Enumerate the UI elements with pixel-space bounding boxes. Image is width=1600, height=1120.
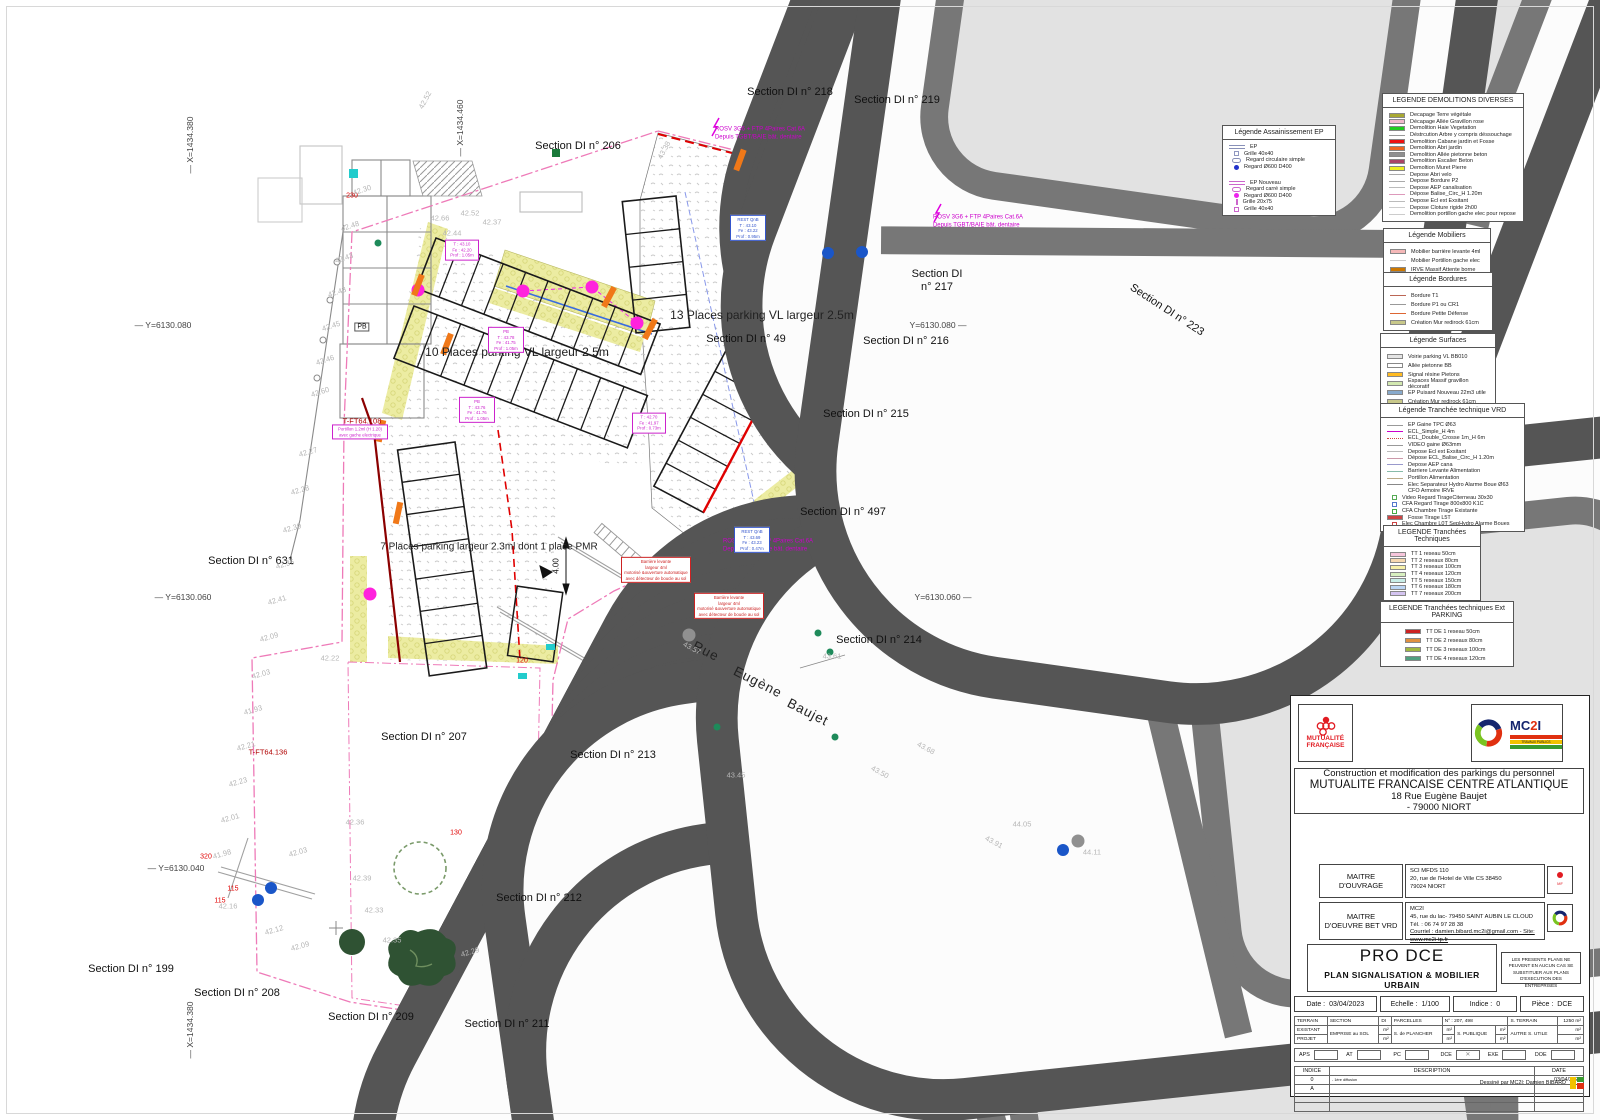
legend-row: Depose Ecl ext Exsitant: [1387, 448, 1520, 455]
legend-bordures: Légende Bordures Bordure T1 Bordure P1 o…: [1383, 272, 1493, 331]
phase-checkbox: [1502, 1050, 1526, 1060]
legend-row: Allée pietonne BB: [1387, 361, 1491, 370]
legend-swatch: [1234, 207, 1239, 212]
mc2i-logo-icon: [1472, 715, 1505, 751]
legend-swatch: [1232, 187, 1241, 192]
legend-title: LEGENDE Tranchées techniques Ext PARKING: [1381, 602, 1513, 623]
mc2i-tagline: TRAVAUX PUBLICS: [1510, 740, 1562, 744]
legend-swatch: [1387, 445, 1403, 446]
legend-row: Bordure P1 ou CR1: [1390, 300, 1488, 309]
legend-row: Demolition Haie Vegetation: [1389, 125, 1519, 132]
legend-swatch: [1229, 181, 1245, 185]
footer-row: Dessiné par MC2I: Damien BIBARD: [1294, 1077, 1586, 1089]
legend-swatch: [1389, 174, 1405, 175]
legend-swatch: [1390, 578, 1406, 583]
legend-row: Depose Abri velo: [1389, 171, 1519, 178]
legend-row: EP Nouveau: [1229, 179, 1331, 186]
legend-row: Depose Ecl ext Exsitant: [1389, 198, 1519, 205]
terrain-table: TERRAIN SECTION DI PARCELLES N° : 207, 4…: [1294, 1016, 1584, 1044]
legend-tranchees-techniques: LEGENDE Tranchées Techniques TT 1 reseau…: [1383, 525, 1481, 601]
legend-row: Elec Separateur Hydro Alarme Boue Ø63: [1387, 481, 1520, 488]
project-title: Construction et modification des parking…: [1294, 768, 1584, 814]
legend-tranchees-ext-parking: LEGENDE Tranchées techniques Ext PARKING…: [1380, 601, 1514, 667]
mc2i-logo: MC2I TRAVAUX PUBLICS: [1471, 704, 1563, 762]
legend-swatch: [1390, 295, 1406, 296]
legend-swatch: [1387, 471, 1403, 472]
legend-swatch: [1389, 166, 1405, 171]
legend-title: Légende Mobiliers: [1384, 229, 1490, 243]
legend-row: EP Gaine TPC Ø63: [1387, 422, 1520, 429]
phase-checkbox: ✕: [1456, 1050, 1480, 1060]
maitre-oeuvre-logo: [1547, 904, 1573, 932]
maitre-ouvrage-address: SCI MFDS 110 20, rue de l'Hotel de Ville…: [1405, 864, 1545, 898]
legend-swatch: [1390, 558, 1406, 563]
legend-row: Bordure Petite Défense: [1390, 309, 1488, 318]
svg-text:MF: MF: [1557, 881, 1563, 886]
legend-row: Depose AEP cana: [1387, 462, 1520, 469]
title-block: MUTUALITÉFRANÇAISE MC2I TRAVAUX PUBLICS …: [1290, 695, 1590, 1097]
legend-row: Regard circulaire simple: [1229, 157, 1331, 164]
legend-swatch: [1392, 495, 1397, 500]
legend-demolitions: LEGENDE DEMOLITIONS DIVERSES Decapage Te…: [1382, 93, 1524, 222]
legend-row: TT DE 2 reseaux 80cm: [1405, 636, 1509, 645]
legend-row: Demoltion Muret Pierre: [1389, 165, 1519, 172]
legend-row: EP: [1229, 144, 1331, 151]
phase-item: EXE: [1488, 1050, 1532, 1060]
legend-swatch: [1387, 372, 1403, 377]
legend-row: Déstrcution Arbre y compris déssouchage: [1389, 132, 1519, 139]
legend-row: Dépose ECL_Balise_Circ_H 1.20m: [1387, 455, 1520, 462]
legend-title: Légende Surfaces: [1381, 334, 1495, 348]
legend-row: Depose AEP canalisation: [1389, 185, 1519, 192]
legend-row: TT 4 reseaux 120cm: [1390, 571, 1476, 578]
legend-swatch: [1387, 425, 1403, 426]
legend-swatch: [1387, 381, 1403, 386]
mutualite-logo: MUTUALITÉFRANÇAISE: [1298, 704, 1353, 762]
disclaimer: LES PRESENTS PLANS NE PEUVENT EN AUCUN C…: [1501, 952, 1581, 984]
legend-surfaces: Légende Surfaces Voirie parking VL BB010…: [1380, 333, 1496, 410]
legend-swatch: [1234, 193, 1239, 198]
legend-swatch: [1392, 509, 1397, 514]
legend-swatch: [1405, 629, 1421, 634]
legend-row: ECL_Double_Crosse 1m_H 6m: [1387, 435, 1520, 442]
legend-title: LEGENDE Tranchées Techniques: [1384, 526, 1480, 547]
legend-title: LEGENDE DEMOLITIONS DIVERSES: [1383, 94, 1523, 108]
legend-swatch: [1389, 159, 1405, 164]
phase-item: PC: [1393, 1050, 1437, 1060]
legend-row: Dépose Balise_Circ_H 1.20m: [1389, 191, 1519, 198]
legend-swatch: [1387, 363, 1403, 368]
legend-swatch: [1389, 139, 1405, 144]
legend-assainissement-ep: Légende Assainissement EP EP Grille 40x4…: [1222, 125, 1336, 216]
trees: [339, 842, 456, 986]
legend-row: VIDEO gaine Ø63mm: [1387, 442, 1520, 449]
legend-swatch: [1390, 260, 1406, 261]
legend-swatch: [1389, 146, 1405, 151]
legend-swatch: [1392, 502, 1397, 507]
legend-swatch: [1390, 572, 1406, 577]
legend-swatch: [1234, 165, 1239, 170]
legend-row: CFA Chambre Tirage Existante: [1387, 508, 1520, 515]
legend-row: Bordure T1: [1390, 291, 1488, 300]
legend-row: Mobilier barrière levante 4ml: [1390, 247, 1486, 256]
plan-sheet: Section DI n° 218Section DI n° 219Sectio…: [0, 0, 1600, 1120]
legend-row: Mobilier Portillon gache elec: [1390, 256, 1486, 265]
legend-title: Légende Assainissement EP: [1223, 126, 1335, 140]
phase-checkbox: [1357, 1050, 1381, 1060]
legend-swatch: [1387, 458, 1403, 459]
stairs-hatch: [413, 161, 482, 196]
legend-row: Regard carré simple: [1229, 186, 1331, 193]
legend-swatch: [1234, 151, 1239, 156]
legend-swatch: [1389, 119, 1405, 124]
legend-swatch: [1389, 201, 1405, 202]
legend-swatch: [1389, 126, 1405, 131]
legend-swatch: [1387, 431, 1403, 432]
legend-swatch: [1387, 515, 1403, 520]
legend-row: TT 5 reseaux 150cm: [1390, 577, 1476, 584]
revision-row: [1295, 1103, 1584, 1112]
legend-swatch: [1389, 135, 1405, 136]
maitre-ouvrage-role: MAITRE D'OUVRAGE: [1319, 864, 1403, 898]
legend-row: TT 7 reseaux 200cm: [1390, 591, 1476, 598]
legend-swatch: [1232, 158, 1241, 163]
legend-row: EP Puisard Nouveau 22m3 utile: [1387, 388, 1491, 397]
mc2i-mini-logo: [1570, 1077, 1584, 1089]
legend-swatch: [1387, 478, 1403, 479]
legend-swatch: [1390, 249, 1406, 254]
legend-mobiliers: Légende Mobiliers Mobilier barrière leva…: [1383, 228, 1491, 278]
legend-swatch: [1387, 438, 1403, 439]
legend-row: Regard Ø600 D400: [1229, 193, 1331, 200]
legend-swatch: [1390, 552, 1406, 557]
legend-swatch: [1405, 647, 1421, 652]
legend-swatch: [1390, 585, 1406, 590]
revision-table: INDICE DESCRIPTION DATE 0 - 1ère diffusi…: [1294, 1066, 1584, 1112]
legend-row: Demolition Cabane jardin et Fosse: [1389, 138, 1519, 145]
phase-checkbox: [1551, 1050, 1575, 1060]
phase-item: DCE✕: [1441, 1050, 1485, 1060]
phase-item: DOE: [1535, 1050, 1579, 1060]
legend-row: TT 6 reseaux 180cm: [1390, 584, 1476, 591]
legend-swatch: [1390, 320, 1406, 325]
revision-row: [1295, 1094, 1584, 1103]
legend-row: Espaces Massif gravillon décoratif: [1387, 379, 1491, 388]
legend-row: Decapage Terre végétale: [1389, 112, 1519, 119]
legend-row: TT 3 reseaux 100cm: [1390, 564, 1476, 571]
phase-checkboxes: APS AT PC DCE✕ EXE DOE: [1294, 1048, 1584, 1062]
legend-row: ECL_Simple_H 4m: [1387, 429, 1520, 436]
legend-row: Regard Ø600 D400: [1229, 164, 1331, 171]
legend-swatch: [1387, 484, 1403, 485]
legend-row: CFA Regard Tirage 800x800 K1C: [1387, 501, 1520, 508]
legend-swatch: [1387, 489, 1403, 494]
legend-swatch: [1390, 304, 1406, 305]
legend-row: TT DE 3 reseaux 100cm: [1405, 645, 1509, 654]
mutualite-logo-icon: [1315, 716, 1337, 736]
legend-swatch: [1405, 638, 1421, 643]
legend-title: Légende Bordures: [1384, 273, 1492, 287]
maitre-oeuvre-address: MC2I 45, rue du lac- 79450 SAINT AUBIN L…: [1405, 902, 1545, 940]
legend-swatch: [1389, 187, 1405, 188]
legend-swatch: [1389, 113, 1405, 118]
legend-swatch: [1387, 390, 1403, 395]
phase-checkbox: [1314, 1050, 1338, 1060]
phase-checkbox: [1405, 1050, 1429, 1060]
legend-swatch: [1389, 207, 1405, 208]
legend-row: Fosse Tirage L5T: [1387, 514, 1520, 521]
legend-row: TT 2 reseaux 80cm: [1390, 558, 1476, 565]
legend-swatch: [1387, 354, 1403, 359]
legend-swatch: [1387, 464, 1403, 465]
legend-row: TT DE 4 reseaux 120cm: [1405, 654, 1509, 663]
legend-swatch: [1387, 451, 1403, 452]
legend-row: TT 1 reseau 50cm: [1390, 551, 1476, 558]
legend-swatch: [1229, 145, 1245, 149]
meta-row: Date :03/04/2023 Echelle :1/100 Indice :…: [1294, 996, 1584, 1012]
legend-swatch: [1389, 152, 1405, 157]
legend-row: Création Mur redirock 61cm: [1390, 318, 1488, 327]
legend-row: Décapage Allée Gravillon rose: [1389, 119, 1519, 126]
legend-row: Portillon Alimentation: [1387, 475, 1520, 482]
legend-row: Demolition Allée pietonne beton: [1389, 152, 1519, 159]
legend-row: Demolition portillon gache elec pour rep…: [1389, 211, 1519, 218]
legend-row: Barriere Levante Alimentation: [1387, 468, 1520, 475]
legend-row: Grille 40x40: [1229, 206, 1331, 213]
legend-tranchee-vrd: Légende Tranchée technique VRD EP Gaine …: [1380, 403, 1525, 532]
phase-item: APS: [1299, 1050, 1343, 1060]
legend-row: CFO Armoire IRVE: [1387, 488, 1520, 495]
legend-row: Demolition Escalier Beton: [1389, 158, 1519, 165]
phase-doc-title: PRO DCE PLAN SIGNALISATION & MOBILIER UR…: [1307, 944, 1497, 992]
legend-row: Depose Bordure P2: [1389, 178, 1519, 185]
legend-swatch: [1389, 181, 1405, 182]
legend-row: Grille 40x40: [1229, 151, 1331, 158]
maitre-oeuvre-role: MAITRE D'OEUVRE BET VRD: [1319, 902, 1403, 940]
legend-row: Demolition Abri jardin: [1389, 145, 1519, 152]
phase-item: AT: [1346, 1050, 1390, 1060]
legend-row: Grille 20x75: [1229, 199, 1331, 206]
legend-swatch: [1405, 656, 1421, 661]
legend-swatch: [1390, 591, 1406, 596]
legend-swatch: [1390, 565, 1406, 570]
legend-swatch: [1389, 214, 1405, 215]
maitre-ouvrage-logo: MF: [1547, 866, 1573, 894]
legend-row: Depose Cloture rigide 2h00: [1389, 204, 1519, 211]
legend-swatch: [1389, 194, 1405, 195]
legend-row: Voirie parking VL BB010: [1387, 352, 1491, 361]
legend-row: Video Regard TirageCiterneau 30x30: [1387, 495, 1520, 502]
legend-row: TT DE 1 reseau 50cm: [1405, 627, 1509, 636]
legend-title: Légende Tranchée technique VRD: [1381, 404, 1524, 418]
legend-swatch: [1390, 313, 1406, 314]
legend-swatch: [1236, 199, 1238, 205]
